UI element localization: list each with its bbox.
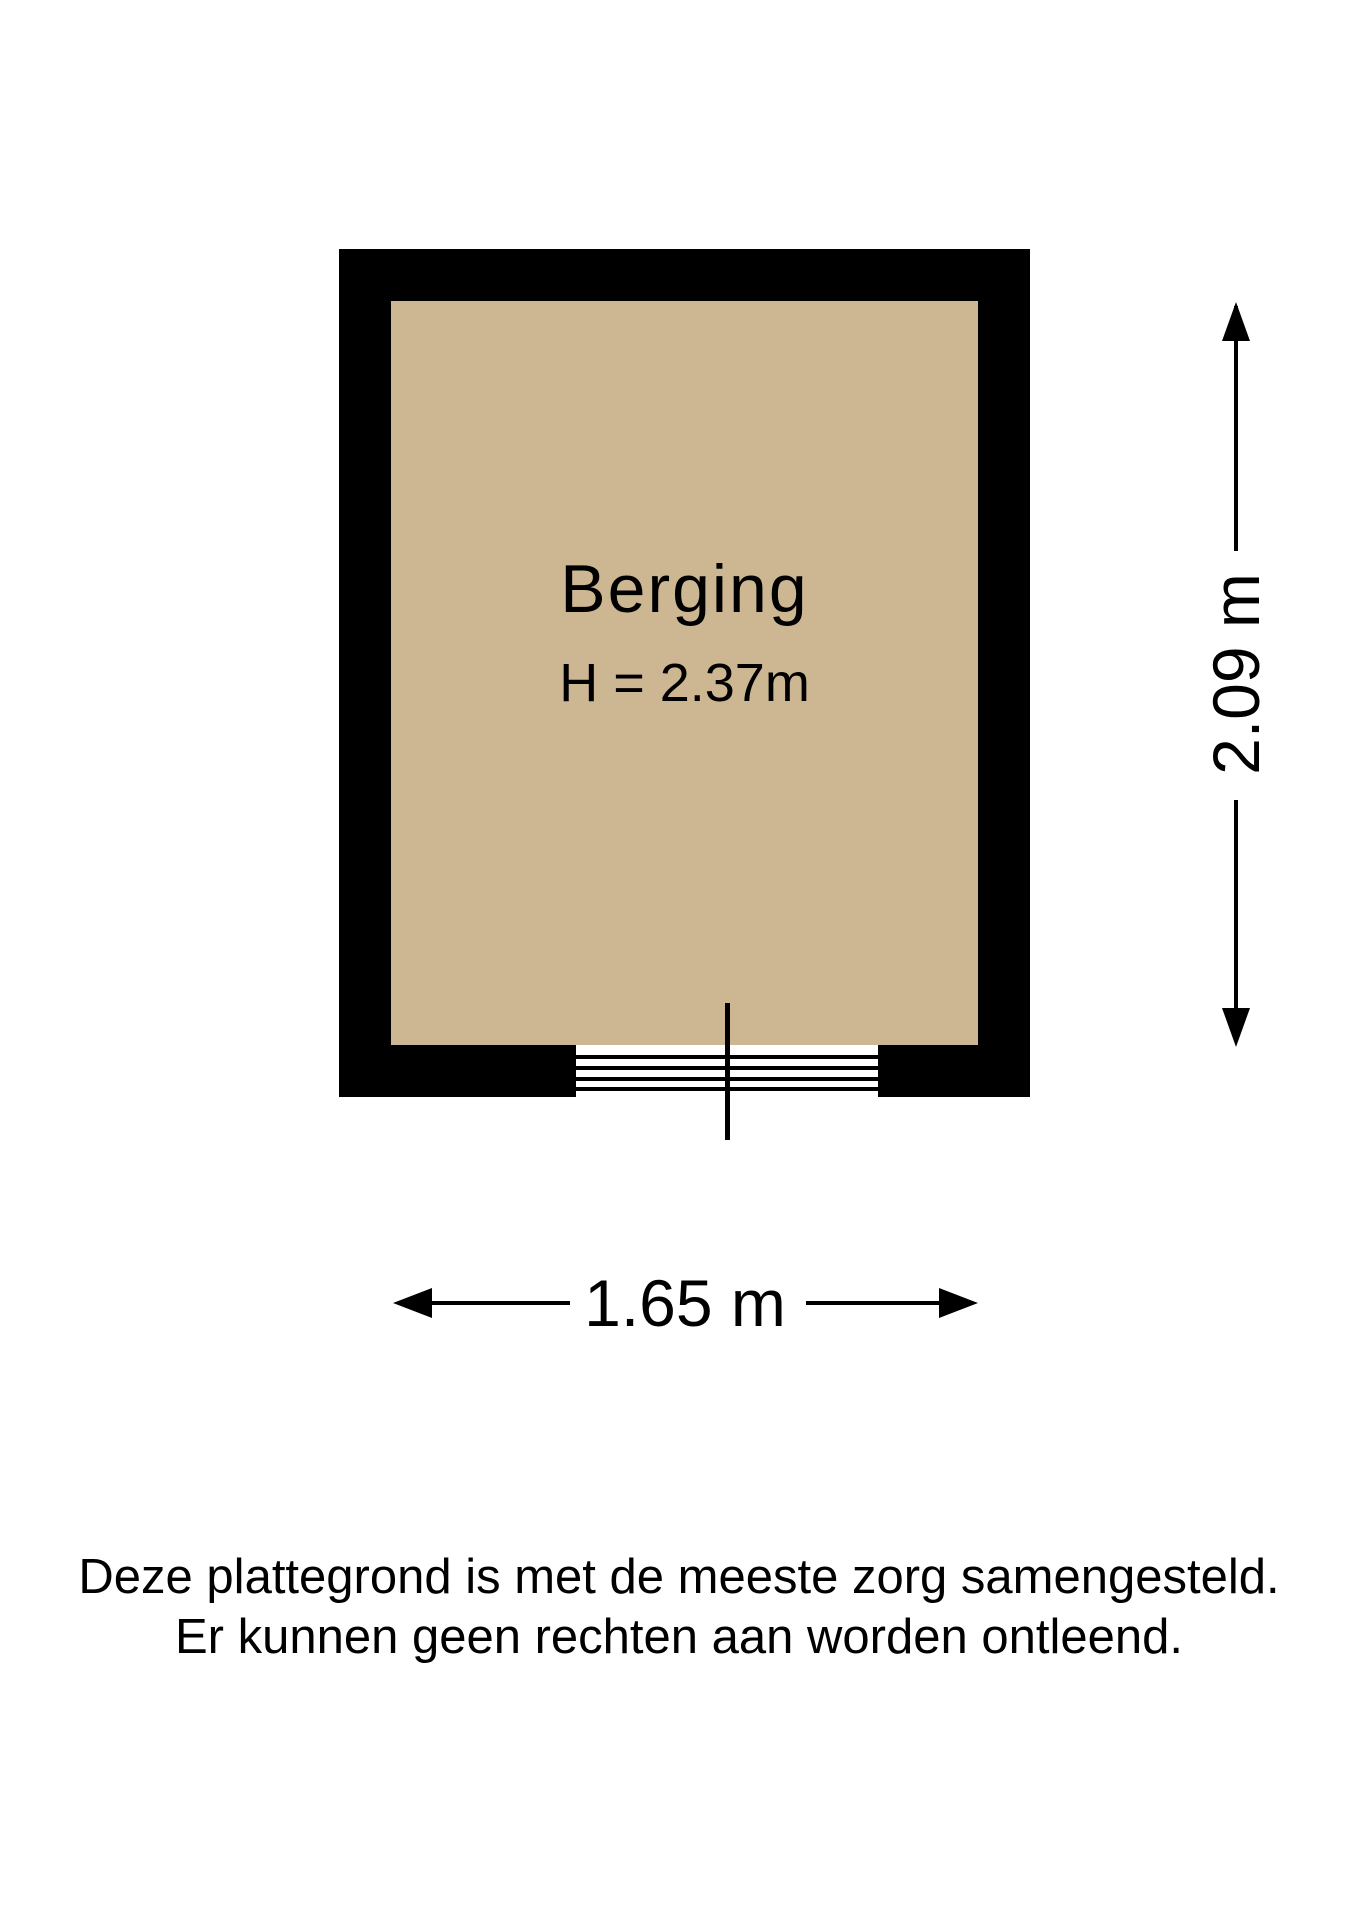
disclaimer-line-2: Er kunnen geen rechten aan worden ontlee… (0, 1607, 1358, 1667)
arrow-right-icon (939, 1288, 978, 1318)
floorplan-canvas: Berging H = 2.37m 2.09 m 1.65 m Deze pla… (0, 0, 1358, 1920)
vertical-dimension-line (1234, 306, 1238, 551)
ceiling-height-label: H = 2.37m (391, 656, 978, 710)
height-dimension-label: 2.09 m (1201, 524, 1271, 824)
door-centerline (725, 1003, 730, 1140)
arrow-left-icon (393, 1288, 432, 1318)
room-name-label: Berging (391, 555, 978, 623)
arrow-down-icon (1222, 1008, 1250, 1047)
disclaimer-text: Deze plattegrond is met de meeste zorg s… (0, 1547, 1358, 1667)
horizontal-dimension-line (806, 1301, 942, 1305)
vertical-dimension-line (1234, 800, 1238, 1012)
disclaimer-line-1: Deze plattegrond is met de meeste zorg s… (0, 1547, 1358, 1607)
width-dimension-label: 1.65 m (535, 1268, 835, 1338)
room-label-group: Berging H = 2.37m (391, 555, 978, 710)
